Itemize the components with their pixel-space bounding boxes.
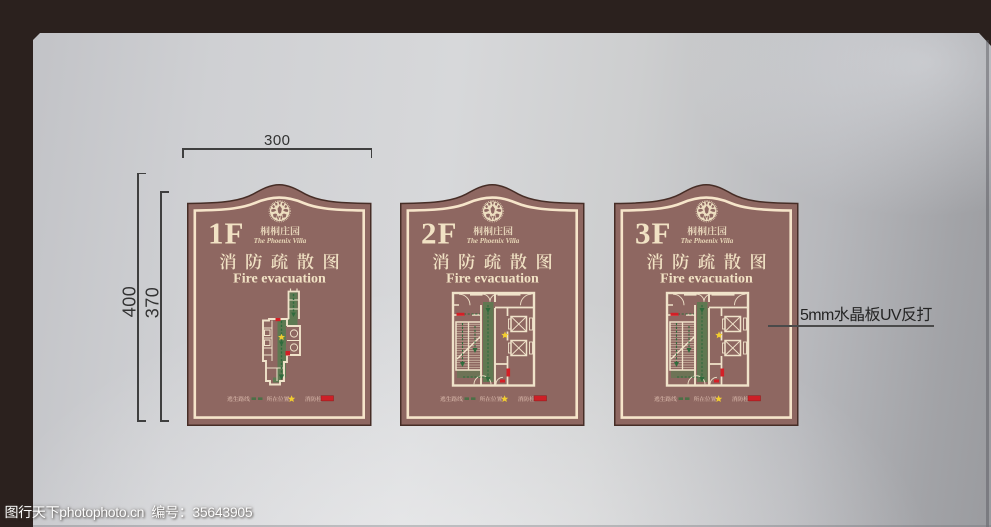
svg-text:3F: 3F bbox=[635, 216, 671, 251]
svg-text:1F: 1F bbox=[208, 216, 244, 251]
svg-text:2F: 2F bbox=[421, 216, 457, 251]
